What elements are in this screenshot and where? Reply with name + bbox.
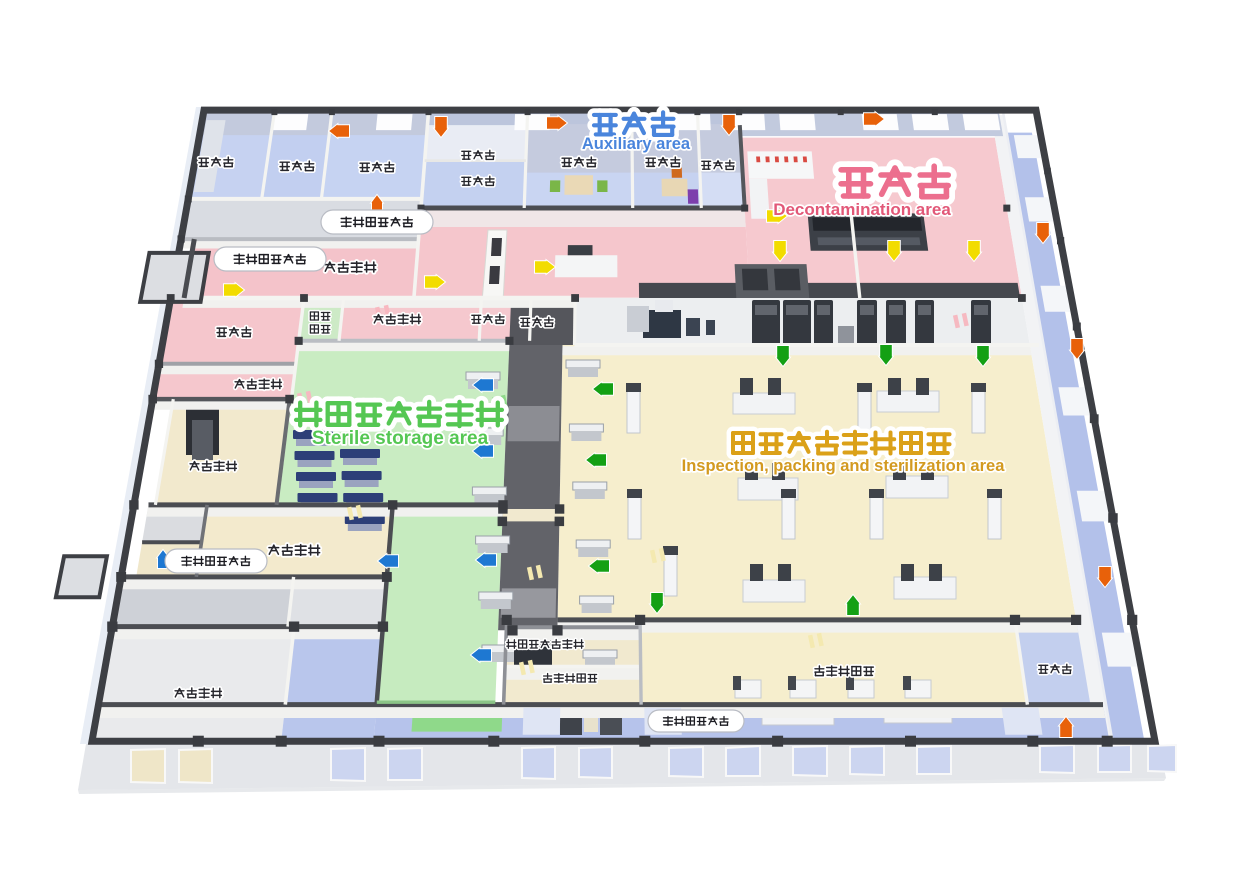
- svg-text:Sterile storage area: Sterile storage area: [312, 428, 489, 449]
- svg-text:Decontamination area: Decontamination area: [773, 200, 951, 219]
- svg-text:Auxiliary area: Auxiliary area: [582, 135, 691, 153]
- svg-text:Inspection, packing and steril: Inspection, packing and sterilization ar…: [682, 457, 1006, 475]
